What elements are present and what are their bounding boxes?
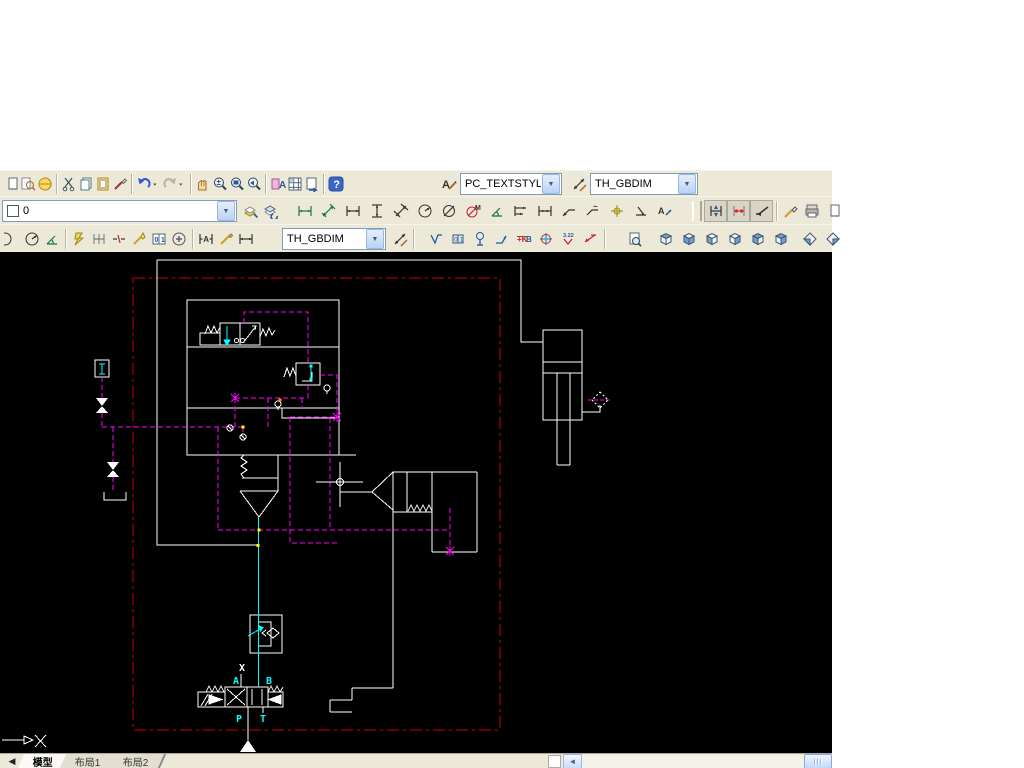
shutoff-valve-1 [96, 398, 108, 413]
make-object-layer-current-icon[interactable] [241, 200, 261, 222]
target-symbol-icon[interactable] [535, 228, 557, 250]
port-t-label: T [260, 714, 266, 725]
dim-radius-icon[interactable] [413, 200, 437, 222]
quick-leader-icon[interactable] [557, 200, 581, 222]
cad-app-frame: ±A? APC_TEXTSTYLE▼TH_GBDIM▼ 0▼ M~A 01ATH… [0, 170, 832, 768]
dim-update-2-icon[interactable] [236, 228, 256, 250]
svg-text:±: ± [216, 178, 221, 187]
crosshair-cursor [316, 462, 363, 507]
dim-text-edit-icon[interactable]: A [196, 228, 216, 250]
view-left-icon[interactable] [700, 228, 723, 250]
layout-tab-label: 布局2 [123, 754, 149, 768]
styles-toolbar-chunk: APC_TEXTSTYLE▼TH_GBDIM▼ [438, 171, 698, 197]
dim-break-icon[interactable] [109, 228, 129, 250]
pressure-gauge [95, 360, 109, 377]
scrollbar-splitter-box[interactable] [548, 755, 561, 768]
system-boundary [157, 260, 543, 545]
svg-text:A: A [658, 206, 665, 216]
toolbar-separator [53, 174, 60, 194]
shutoff-valve-2 [104, 462, 126, 500]
dim-style-manager-icon[interactable] [568, 173, 590, 195]
chevron-down-icon[interactable]: ▼ [678, 174, 696, 194]
port-b-label: B [266, 676, 272, 687]
layer-combo[interactable]: 0▼ [2, 200, 237, 222]
view-front-icon[interactable] [746, 228, 769, 250]
plus-circle-icon[interactable] [169, 228, 189, 250]
dim-diameter-icon[interactable] [437, 200, 461, 222]
solenoid-valve-top [200, 323, 275, 345]
cad-application-window: ±A? APC_TEXTSTYLE▼TH_GBDIM▼ 0▼ M~A 01ATH… [0, 0, 1024, 768]
svg-text:A: A [279, 180, 286, 191]
check-valve-box [250, 615, 282, 653]
toolbar-separator [773, 201, 780, 221]
dim-oblique-icon[interactable] [629, 200, 653, 222]
dim-style-combo-2-value: TH_GBDIM [283, 233, 365, 245]
datum-target-icon[interactable]: 01 [447, 228, 469, 250]
layers-toolbar-chunk: 0▼ [2, 197, 281, 225]
layer-combo-value: 0 [19, 205, 216, 217]
ucs-icon [2, 735, 46, 747]
red-leader-icon[interactable] [579, 228, 601, 250]
dim-style-compare-icon[interactable] [727, 200, 750, 222]
publish-icon[interactable] [36, 173, 53, 195]
standard-toolbar-chunk: ±A? [2, 171, 344, 197]
leader-icon[interactable] [750, 200, 773, 222]
toolbar-separator [189, 229, 196, 249]
toolbar-separator [601, 229, 608, 249]
dim-extra-toolbar-chunk [692, 197, 843, 225]
dim-style-apply-icon[interactable] [390, 228, 410, 250]
chevron-down-icon[interactable]: ▼ [366, 229, 384, 249]
svg-text:0: 0 [155, 237, 159, 244]
dim-style-combo-2[interactable]: TH_GBDIM▼ [282, 228, 386, 250]
dim-style-combo[interactable]: TH_GBDIM▼ [590, 173, 698, 195]
surface-finish-icon[interactable] [425, 228, 447, 250]
sheet-set-manager-icon[interactable] [303, 173, 320, 195]
coupling-diamond [582, 392, 612, 412]
dim-space-icon[interactable] [89, 228, 109, 250]
new-drawing-clipped-icon[interactable] [2, 173, 19, 195]
scroll-left-button[interactable]: ◄ [563, 754, 582, 768]
svg-text:3.22: 3.22 [563, 233, 574, 239]
help-icon[interactable]: ? [327, 173, 344, 195]
junction-dots [242, 399, 282, 548]
copy-icon[interactable] [77, 173, 94, 195]
port-p-label: P [236, 714, 242, 725]
undo-icon[interactable] [135, 173, 152, 195]
text-style-combo[interactable]: PC_TEXTSTYLE▼ [460, 173, 562, 195]
undo-dropdown-icon[interactable] [152, 173, 161, 195]
toolbar-spacer [608, 239, 624, 240]
pump-filter-funnel [240, 455, 356, 517]
layout-tab-3[interactable]: 布局2 [107, 754, 165, 768]
dim-update-icon[interactable] [704, 200, 727, 222]
view-back-icon[interactable] [769, 228, 792, 250]
model-space-canvas[interactable]: A B P T X [0, 252, 832, 753]
dimension-toolbar-chunk: M~A [293, 197, 677, 225]
tolerance-icon[interactable]: ~ [581, 200, 605, 222]
toolbar-drag-handle[interactable] [692, 201, 702, 221]
kb-symbol-icon[interactable]: +KB [513, 228, 535, 250]
pilot-lines [102, 312, 450, 551]
properties-icon[interactable]: A [269, 173, 286, 195]
toolbar-spacer [646, 239, 654, 240]
svg-text:1: 1 [161, 237, 165, 244]
dim-rotated-icon[interactable] [389, 200, 413, 222]
scrollbar-thumb[interactable] [804, 754, 832, 768]
quick-dim-icon[interactable] [69, 228, 89, 250]
cut-icon[interactable] [60, 173, 77, 195]
toolbar-separator [187, 174, 194, 194]
find-icon[interactable] [19, 173, 36, 195]
dim-edit-icon[interactable]: A [653, 200, 677, 222]
redo-icon[interactable] [161, 173, 178, 195]
symbols-views-toolbar-chunk: 01ATH_GBDIM▼01+KB3.22 [2, 225, 844, 253]
horizontal-scrollbar[interactable]: ◄ [548, 755, 832, 768]
svg-text:A: A [203, 235, 209, 244]
circle-clipped-icon[interactable] [2, 228, 22, 250]
clipped-right-icon[interactable] [822, 200, 843, 222]
toolbar-spacer [417, 239, 425, 240]
preview-icon[interactable] [624, 228, 646, 250]
zoom-window-icon[interactable] [228, 173, 245, 195]
view-top-icon[interactable] [654, 228, 677, 250]
layer-previous-icon[interactable] [261, 200, 281, 222]
svg-text:B: B [526, 235, 532, 244]
bend-leader-icon[interactable] [491, 228, 513, 250]
svg-text:?: ? [333, 179, 340, 191]
toolbar-separator [320, 174, 327, 194]
pan-icon[interactable] [194, 173, 211, 195]
dim-horizontal-icon[interactable] [341, 200, 365, 222]
scrollbar-track[interactable] [582, 755, 804, 768]
layout-tab-label: 布局1 [75, 754, 101, 768]
tank-symbol [240, 740, 256, 752]
main-pressure-line [224, 326, 313, 687]
layout-tabs: 模型布局1布局2 [25, 754, 162, 768]
dim-angular-icon[interactable]: M [461, 200, 485, 222]
svg-text:~: ~ [593, 203, 598, 211]
match-properties-icon[interactable] [111, 173, 128, 195]
weld-symbol-icon[interactable]: 3.22 [557, 228, 579, 250]
layer-color-swatch [7, 205, 19, 217]
designcenter-icon[interactable] [286, 173, 303, 195]
plot-icon[interactable] [801, 200, 822, 222]
hydraulic-schematic: A B P T X [0, 252, 832, 753]
jogged-radius-icon[interactable] [22, 228, 42, 250]
inspection-dim-icon[interactable] [129, 228, 149, 250]
dim-style-combo-value: TH_GBDIM [591, 178, 677, 190]
toolbar-layers-dims: 0▼ M~A [0, 196, 832, 225]
dim-vertical-icon[interactable] [365, 200, 389, 222]
zoom-realtime-icon[interactable]: ± [211, 173, 228, 195]
dim-edit-pencil-icon[interactable] [216, 228, 236, 250]
valve-manifold-block [187, 300, 339, 455]
chevron-down-icon[interactable]: ▼ [217, 201, 235, 221]
toolbar-symbols-views: 01ATH_GBDIM▼01+KB3.22 [0, 224, 832, 253]
pilot-node-stars [231, 393, 454, 556]
dim-linear-icon[interactable] [293, 200, 317, 222]
relief-valve [330, 472, 477, 712]
view-se-iso-icon[interactable] [821, 228, 844, 250]
dim-baseline-icon[interactable] [509, 200, 533, 222]
toolbar-spacer [256, 239, 282, 240]
chevron-down-icon[interactable]: ▼ [542, 174, 560, 194]
text-style-combo-value: PC_TEXTSTYLE [461, 178, 541, 190]
angular-dim-icon[interactable] [42, 228, 62, 250]
view-bottom-icon[interactable] [677, 228, 700, 250]
view-sw-iso-icon[interactable] [798, 228, 821, 250]
redo-dropdown-icon[interactable] [178, 173, 187, 195]
pilot-valve [284, 363, 320, 385]
toolbar-separator [262, 174, 269, 194]
svg-text:M: M [475, 205, 481, 212]
paste-icon[interactable] [94, 173, 111, 195]
port-a-label: A [233, 676, 239, 687]
layout-tab-label: 模型 [33, 754, 53, 768]
view-right-icon[interactable] [723, 228, 746, 250]
dim-continue-icon[interactable] [533, 200, 557, 222]
window-01-icon[interactable]: 01 [149, 228, 169, 250]
toolbar-separator [62, 229, 69, 249]
text-style-icon[interactable]: A [438, 173, 460, 195]
dim-arc-length-icon[interactable] [485, 200, 509, 222]
red-plot-border [133, 278, 500, 730]
toolbar-separator [128, 174, 135, 194]
hydraulic-cylinder [543, 330, 582, 465]
sketch-icon[interactable] [780, 200, 801, 222]
toolbar-standard: ±A? APC_TEXTSTYLE▼TH_GBDIM▼ [0, 170, 832, 197]
svg-text:A: A [442, 179, 450, 191]
stamp-symbol-icon[interactable] [469, 228, 491, 250]
center-mark-icon[interactable] [605, 200, 629, 222]
node-circle-glyphs [227, 385, 330, 440]
dim-aligned-icon[interactable] [317, 200, 341, 222]
blocked-port-label: X [239, 663, 245, 674]
toolbar-separator [410, 229, 417, 249]
layout-tab-bar: ◀ 模型布局1布局2 ◄ [0, 753, 832, 768]
zoom-previous-icon[interactable] [245, 173, 262, 195]
